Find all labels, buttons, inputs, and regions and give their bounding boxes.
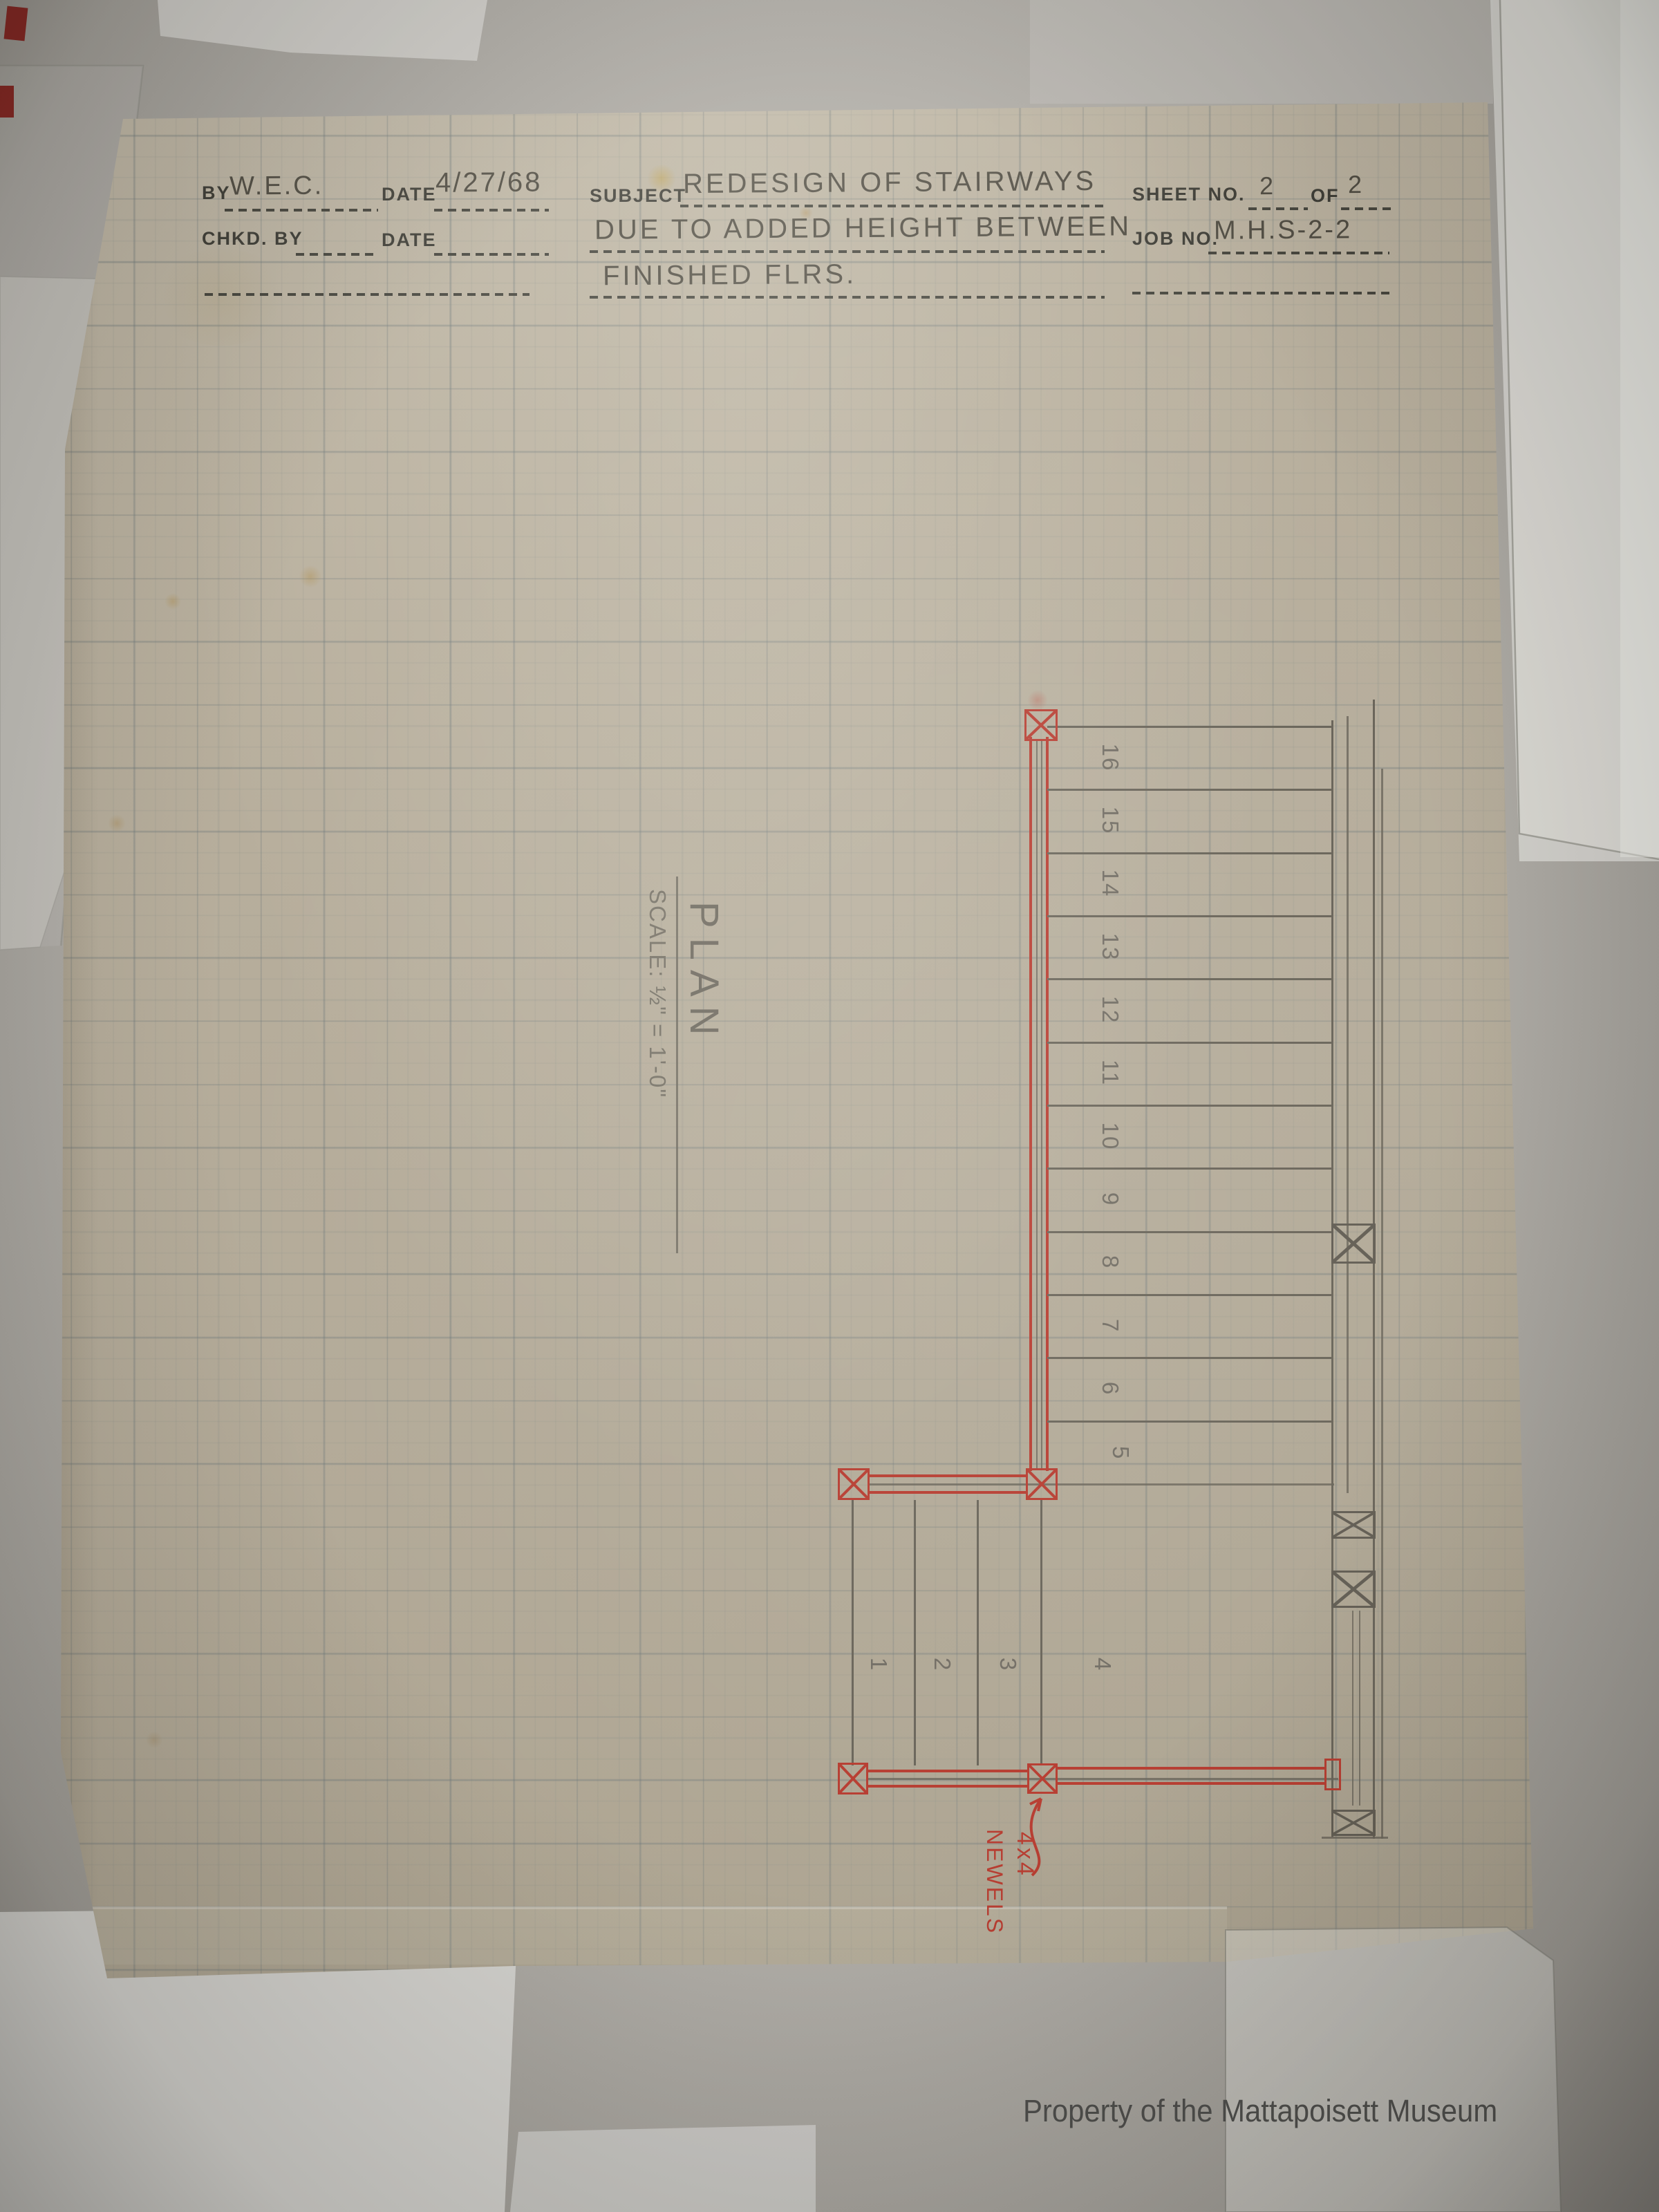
- acetate-bottom-right: [1226, 1927, 1561, 2212]
- bright-sheet-edge: [1620, 0, 1659, 857]
- acetate-overlays: [0, 0, 1659, 2212]
- watermark: Property of the Mattapoisett Museum: [1023, 2093, 1576, 2129]
- photo-of-drawing: BY W.E.C. DATE 4/27/68 CHKD. BY DATE SUB…: [0, 0, 1659, 2212]
